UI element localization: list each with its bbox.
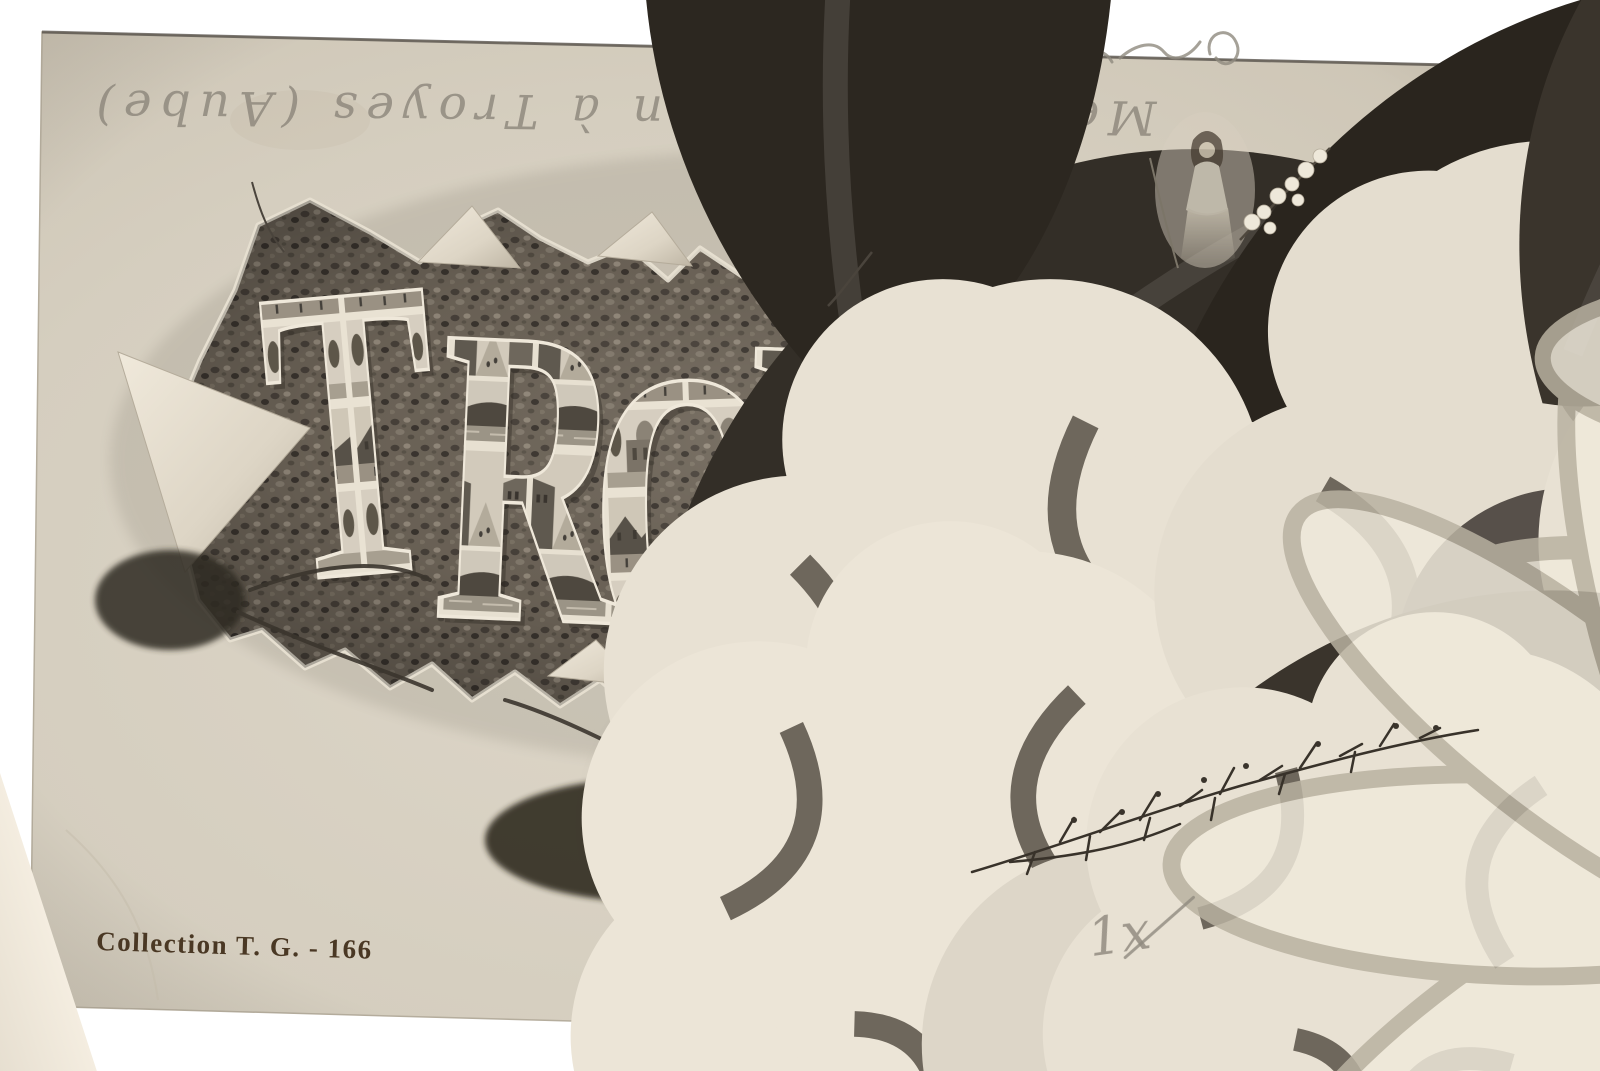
postcard-artwork: Melle Grandjean à Troyes (Aube) 93 m T T…: [0, 0, 1600, 1071]
scanned-postcard-page: Melle Grandjean à Troyes (Aube) 93 m T T…: [0, 0, 1600, 1071]
postcard: Melle Grandjean à Troyes (Aube) 93 m T T…: [0, 0, 1600, 1071]
price-mark-text: 1x: [1084, 901, 1154, 969]
